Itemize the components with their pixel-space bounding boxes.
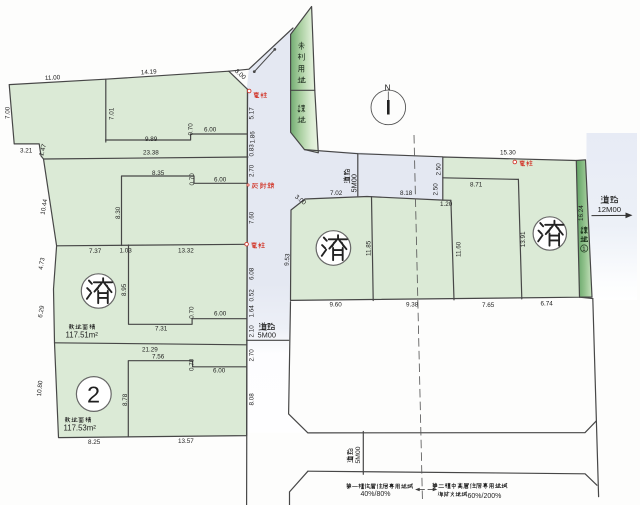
svg-text:1.03: 1.03: [120, 248, 133, 255]
svg-text:15.30: 15.30: [500, 150, 516, 157]
svg-text:40%/80%: 40%/80%: [361, 491, 391, 498]
svg-text:7.37: 7.37: [89, 248, 102, 255]
svg-text:8.18: 8.18: [400, 190, 413, 197]
svg-text:8.78: 8.78: [122, 393, 129, 406]
svg-text:14.19: 14.19: [141, 68, 158, 76]
svg-text:N: N: [385, 83, 391, 93]
svg-text:8.30: 8.30: [115, 206, 122, 219]
svg-text:60%/200%: 60%/200%: [468, 493, 502, 500]
svg-text:11.85: 11.85: [366, 240, 373, 256]
svg-text:5M00: 5M00: [258, 331, 277, 340]
svg-text:10.80: 10.80: [36, 380, 44, 397]
svg-text:6.00: 6.00: [214, 311, 227, 318]
svg-text:2.50: 2.50: [433, 183, 440, 196]
svg-text:8.35: 8.35: [152, 170, 165, 177]
svg-text:9.53: 9.53: [284, 253, 292, 266]
svg-text:11.00: 11.00: [45, 74, 61, 82]
svg-text:9.89: 9.89: [145, 136, 158, 143]
svg-text:3.21: 3.21: [20, 148, 33, 155]
svg-text:2.70: 2.70: [249, 164, 256, 177]
svg-text:13.57: 13.57: [178, 438, 194, 445]
svg-text:0.70: 0.70: [189, 173, 196, 186]
svg-text:7.31: 7.31: [155, 326, 168, 333]
svg-text:6.00: 6.00: [204, 127, 217, 134]
svg-text:8.25: 8.25: [88, 439, 101, 446]
svg-text:6.00: 6.00: [214, 177, 227, 184]
svg-text:8.95: 8.95: [121, 283, 128, 296]
svg-text:7.02: 7.02: [330, 190, 343, 197]
svg-text:7.00: 7.00: [5, 106, 12, 119]
svg-text:13.32: 13.32: [178, 248, 194, 255]
svg-text:2.50: 2.50: [436, 163, 443, 176]
svg-text:5M00: 5M00: [355, 446, 362, 463]
svg-text:8.08: 8.08: [249, 393, 256, 406]
svg-text:16.24: 16.24: [578, 205, 585, 221]
svg-text:7.65: 7.65: [482, 302, 495, 309]
svg-text:13.91: 13.91: [520, 231, 527, 247]
svg-text:9.38: 9.38: [406, 302, 419, 309]
svg-text:0.70: 0.70: [188, 358, 195, 371]
svg-text:2.70: 2.70: [249, 349, 256, 362]
svg-text:5M00: 5M00: [349, 174, 358, 193]
svg-text:9.60: 9.60: [330, 302, 343, 309]
svg-text:7.60: 7.60: [249, 211, 256, 224]
svg-text:117.51m²: 117.51m²: [66, 331, 99, 340]
svg-text:1.86: 1.86: [250, 131, 257, 144]
svg-text:8.71: 8.71: [470, 182, 483, 189]
svg-text:11.60: 11.60: [456, 241, 463, 257]
svg-text:0.70: 0.70: [188, 123, 195, 136]
svg-text:6.08: 6.08: [249, 267, 256, 280]
svg-text:2: 2: [87, 381, 100, 407]
svg-text:0.70: 0.70: [188, 306, 195, 319]
svg-text:7.01: 7.01: [109, 107, 116, 120]
svg-text:23.38: 23.38: [143, 150, 159, 157]
svg-text:1.64: 1.64: [249, 305, 256, 318]
svg-text:12M00: 12M00: [598, 205, 622, 214]
svg-text:0.52: 0.52: [249, 289, 256, 302]
svg-text:2.10: 2.10: [249, 325, 256, 338]
svg-text:1.20: 1.20: [440, 201, 453, 208]
svg-text:6.00: 6.00: [213, 368, 226, 375]
svg-text:6.74: 6.74: [541, 301, 554, 308]
svg-text:5.17: 5.17: [249, 107, 256, 120]
svg-text:21.29: 21.29: [142, 347, 158, 354]
svg-text:7.56: 7.56: [152, 354, 165, 361]
svg-text:117.53m²: 117.53m²: [64, 424, 97, 433]
svg-text:0.83: 0.83: [249, 144, 256, 157]
